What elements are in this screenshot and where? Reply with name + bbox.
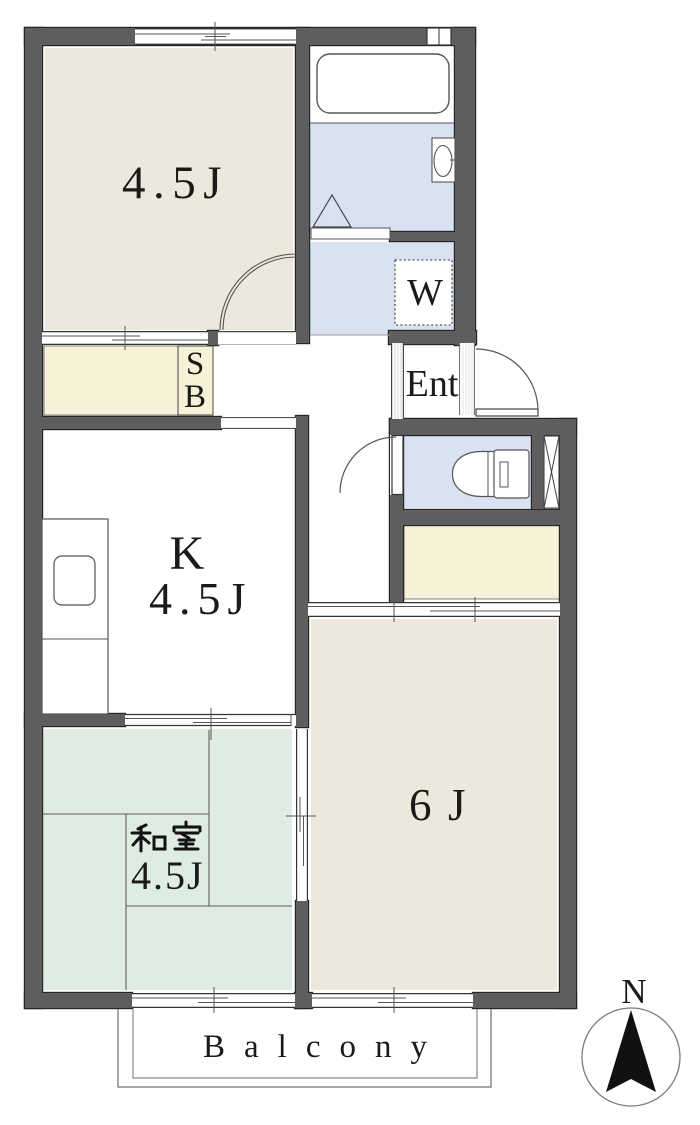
svg-text:6J: 6J [409, 780, 482, 830]
svg-text:W: W [407, 272, 443, 314]
svg-text:Balcony: Balcony [203, 1029, 446, 1065]
svg-text:B: B [184, 379, 206, 415]
svg-text:N: N [621, 972, 646, 1011]
svg-text:4.5J: 4.5J [122, 157, 229, 209]
svg-text:Ent: Ent [406, 363, 459, 405]
svg-text:S: S [186, 346, 204, 382]
svg-text:4.5J: 4.5J [131, 853, 205, 898]
svg-text:4.5J: 4.5J [149, 573, 252, 624]
